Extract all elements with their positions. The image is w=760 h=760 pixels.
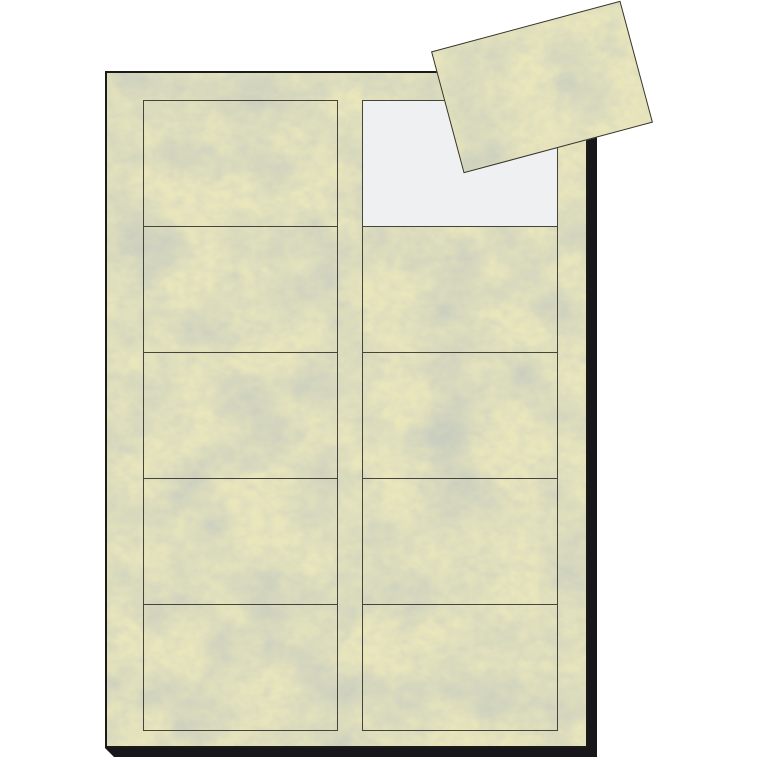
card-slot [143,478,338,605]
card-slot [143,352,338,479]
card-grid [107,73,586,746]
card-slot [362,226,558,353]
product-photo [0,0,760,760]
business-card-sheet [105,71,588,748]
card-slot [362,604,558,731]
card-slot [362,478,558,605]
detached-business-card [431,1,653,173]
card-slot [143,604,338,731]
card-slot [143,100,338,227]
card-slot [143,226,338,353]
card-marble-texture [432,2,651,172]
card-slot [362,352,558,479]
